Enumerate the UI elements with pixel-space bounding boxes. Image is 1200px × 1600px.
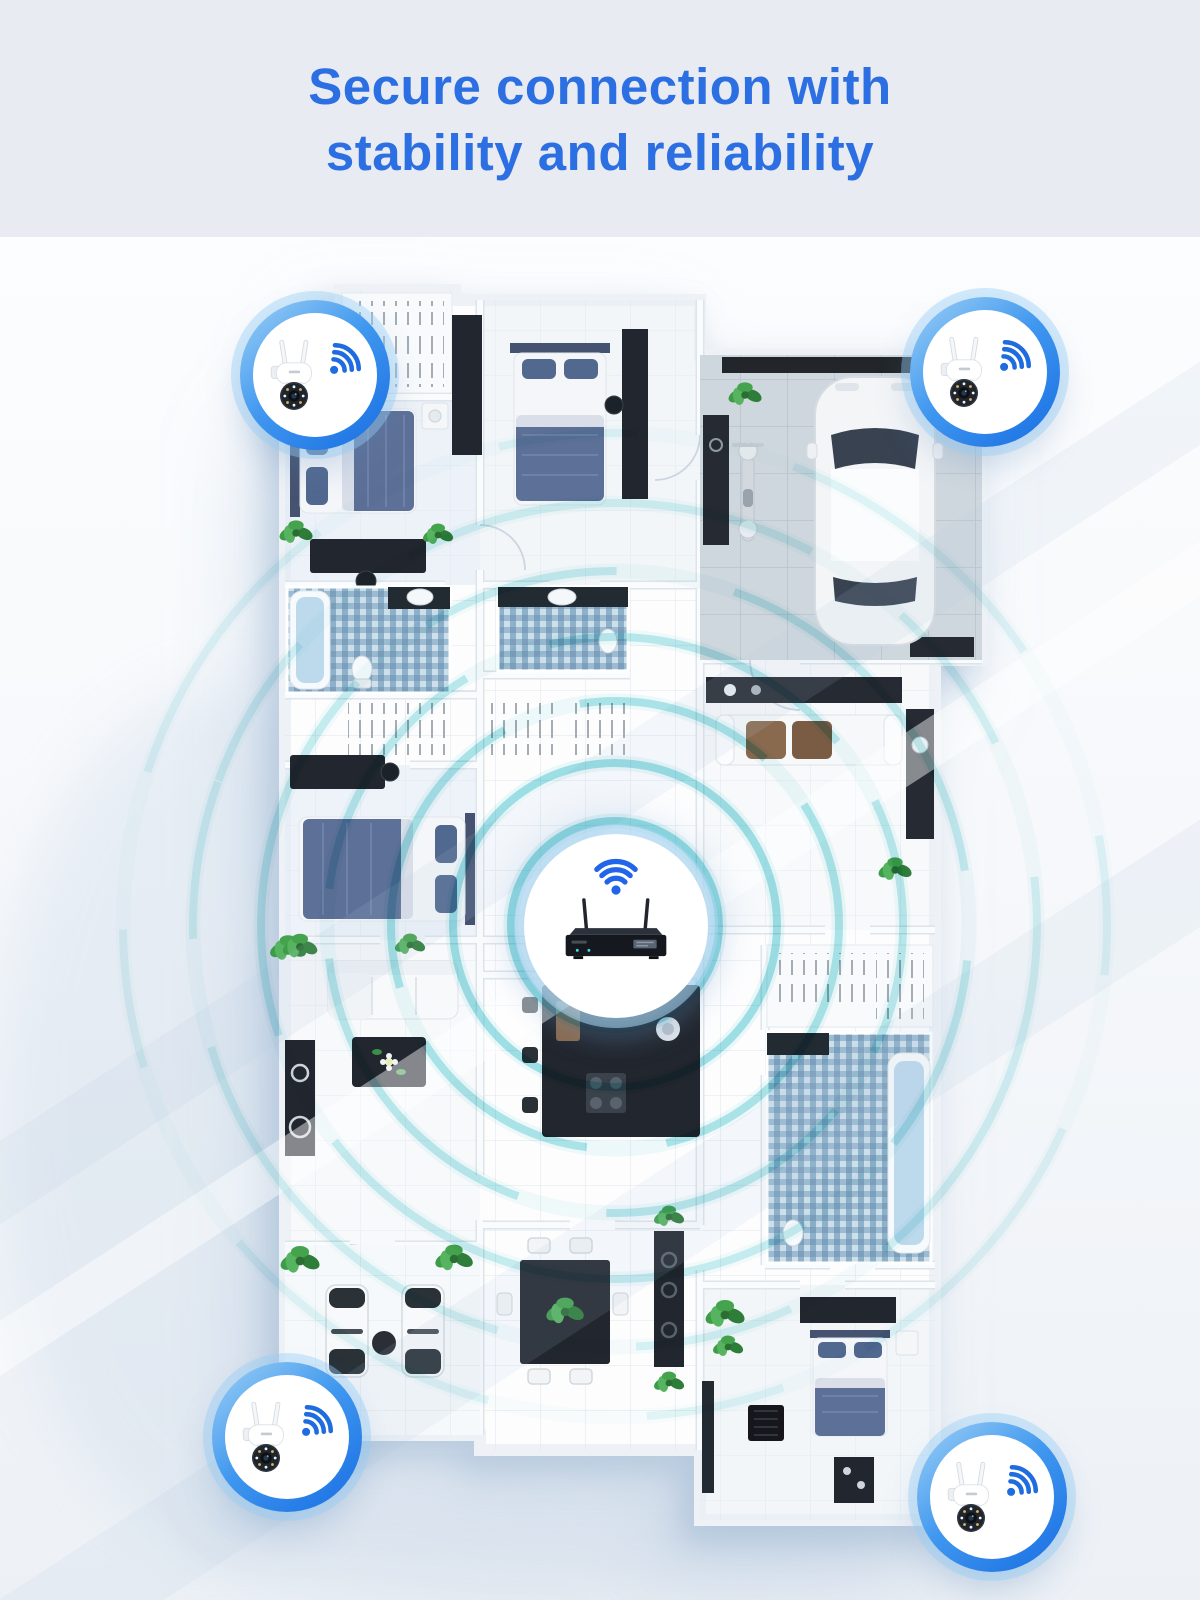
ptz-camera-icon bbox=[266, 336, 322, 414]
camera-badge-bottom-left bbox=[212, 1362, 362, 1512]
nvr-recorder-icon bbox=[556, 896, 676, 966]
camera-badge-top-left bbox=[240, 300, 390, 450]
camera-badge-top-right bbox=[910, 297, 1060, 447]
ptz-camera-icon bbox=[943, 1458, 999, 1536]
wardrobe-2 bbox=[452, 315, 482, 455]
title-line-1: Secure connection with bbox=[308, 58, 891, 115]
page-title: Secure connection with stability and rel… bbox=[308, 54, 891, 186]
camera-badge-core bbox=[930, 1435, 1054, 1559]
camera-badge-core bbox=[923, 310, 1047, 434]
ptz-camera-icon bbox=[238, 1398, 294, 1476]
ptz-camera-icon bbox=[936, 333, 992, 411]
desk-2 bbox=[622, 329, 648, 499]
title-line-2: stability and reliability bbox=[326, 124, 874, 181]
marketing-page: Secure connection with stability and rel… bbox=[0, 0, 1200, 1600]
header-band: Secure connection with stability and rel… bbox=[0, 0, 1200, 237]
wifi-signal-icon bbox=[286, 1392, 345, 1451]
wifi-signal-icon bbox=[592, 850, 640, 898]
wifi-signal-icon bbox=[314, 330, 373, 389]
wifi-signal-icon bbox=[991, 1452, 1050, 1511]
nvr-hub-badge bbox=[524, 834, 708, 1018]
wifi-signal-icon bbox=[984, 327, 1043, 386]
camera-badge-core bbox=[225, 1375, 349, 1499]
camera-badge-bottom-right bbox=[917, 1422, 1067, 1572]
bed-2 bbox=[510, 343, 610, 505]
camera-badge-core bbox=[253, 313, 377, 437]
